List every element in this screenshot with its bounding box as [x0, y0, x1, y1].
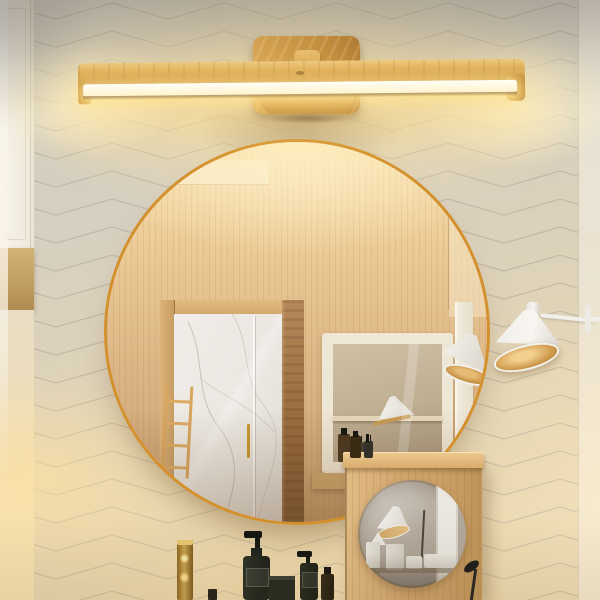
faucet-glint [180, 553, 189, 564]
brass-faucet [177, 540, 193, 600]
bathroom-photo [0, 0, 600, 600]
sconce-shadow [250, 112, 364, 128]
small-dark-item [208, 589, 217, 600]
soap-box [269, 580, 295, 600]
lamp-arm-mount [589, 317, 600, 321]
amber-bottle-cap [353, 431, 358, 437]
left-wall-edge-highlight [0, 0, 8, 480]
door-panel-molding [5, 8, 26, 240]
right-wall-corner [578, 0, 600, 600]
pump-bottle-medium-label [302, 572, 318, 588]
led-bar-light [78, 54, 525, 105]
amber-bottle [350, 436, 361, 458]
small-round-mirror [358, 480, 466, 588]
small-pump-bottle [364, 441, 373, 458]
small-pump-head [366, 434, 369, 442]
brass-faucet-top [177, 540, 193, 545]
faucet-glint [180, 571, 189, 584]
left-wall-column [0, 0, 34, 600]
pump-bottle-large-label [246, 568, 269, 587]
small-bottle-body [321, 574, 334, 600]
small-mirror-shading [358, 480, 466, 588]
